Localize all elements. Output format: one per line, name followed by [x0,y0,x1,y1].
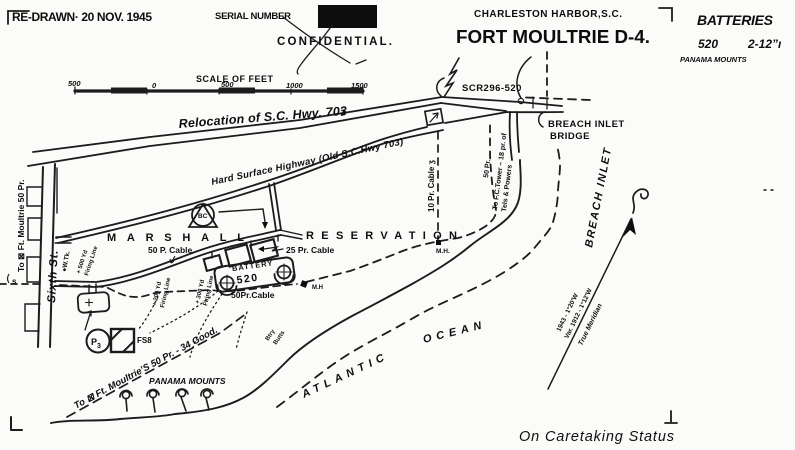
svg-text:BATTERY: BATTERY [231,258,273,273]
svg-text:50 P. Cable: 50 P. Cable [148,245,193,255]
svg-text:SCALE OF FEET: SCALE OF FEET [196,74,274,84]
svg-text:FS8: FS8 [137,336,152,345]
svg-text:520: 520 [236,272,259,287]
svg-text:RE-DRAWN· 20 NOV. 1945: RE-DRAWN· 20 NOV. 1945 [12,10,152,24]
svg-text:On Caretaking Status: On Caretaking Status [519,429,674,445]
svg-text:SCR296-520: SCR296-520 [462,83,522,94]
svg-text:BC: BC [198,213,208,220]
svg-text:50 Pr.: 50 Pr. [483,159,492,178]
svg-text:0: 0 [152,81,157,90]
svg-text:10 Pr. Cable ʒ: 10 Pr. Cable ʒ [427,159,436,212]
svg-text:MARSHALL: MARSHALL [107,232,244,244]
svg-text:BRIDGE: BRIDGE [550,131,590,142]
svg-text:1000: 1000 [286,81,304,90]
svg-text:OCEAN: OCEAN [422,319,488,346]
svg-text:3: 3 [97,343,101,350]
svg-text:Hard Surface Highway (Old S.C.: Hard Surface Highway (Old S.C.Hwy 703) [210,136,404,188]
svg-text:●W.Tk.: ●W.Tk. [61,250,72,272]
svg-text:ATLANTIC: ATLANTIC [299,350,390,401]
svg-text:1500: 1500 [351,81,369,90]
svg-text:520: 520 [698,37,718,51]
svg-text:Firing Line: Firing Line [84,245,99,277]
svg-text:BREACH INLET: BREACH INLET [548,119,625,130]
svg-text:s: s [12,277,17,286]
svg-text:500: 500 [68,79,81,88]
svg-text:25 Pr. Cable: 25 Pr. Cable [286,245,334,255]
svg-text:500: 500 [221,80,234,89]
svg-text:M.H.: M.H. [436,248,450,255]
svg-text:PANAMA MOUNTS: PANAMA MOUNTS [680,55,747,64]
svg-text:SERIAL NUMBER: SERIAL NUMBER [215,11,291,22]
svg-text:Relocation of S.C. Hwy. 703: Relocation of S.C. Hwy. 703 [178,104,347,131]
svg-text:2-12”ı: 2-12”ı [747,37,782,51]
svg-text:CHARLESTON HARBOR,S.C.: CHARLESTON HARBOR,S.C. [474,9,622,20]
svg-text:PАNАMА MOUNTS: PАNАMА MOUNTS [149,376,226,386]
svg-text:50Pr.Cable: 50Pr.Cable [231,290,275,300]
svg-text:CONFIDENTIAL.: CONFIDENTIAL. [277,36,392,48]
svg-text:BATTERIES: BATTERIES [697,12,774,28]
svg-text:FORT MOULTRIE D-4.: FORT MOULTRIE D-4. [456,26,650,47]
svg-text:Sixth St.: Sixth St. [46,249,61,303]
svg-text:To ⊠ Ft. Moultrie 50 Pr.: To ⊠ Ft. Moultrie 50 Pr. [16,180,26,272]
svg-text:M.H: M.H [312,285,323,291]
svg-text:RESERVATION: RESERVATION [306,230,457,242]
svg-text:BREACH INLET: BREACH INLET [583,146,614,249]
